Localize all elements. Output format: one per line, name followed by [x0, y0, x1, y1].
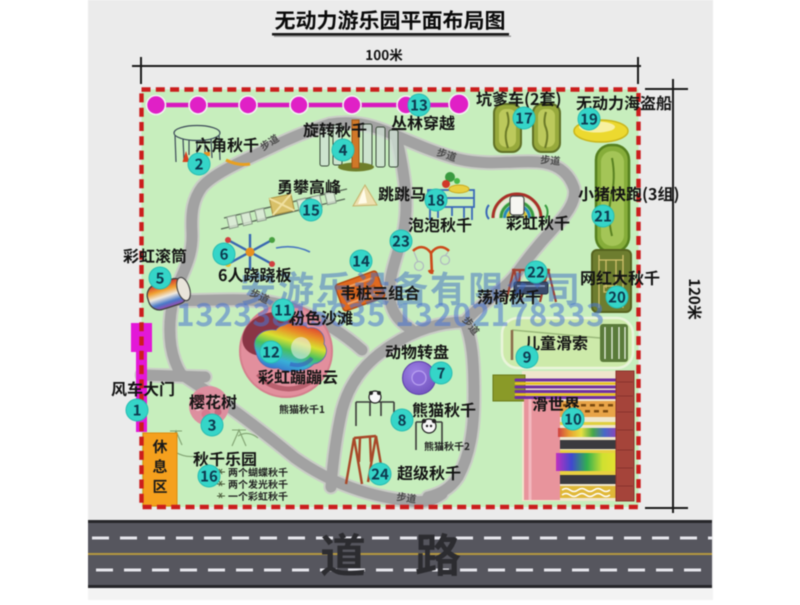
svg-text:11: 11: [274, 300, 292, 321]
svg-text:1: 1: [133, 400, 142, 421]
svg-text:21: 21: [594, 206, 612, 227]
svg-text:12: 12: [262, 342, 280, 363]
svg-text:7: 7: [437, 363, 446, 384]
svg-text:16: 16: [200, 466, 218, 487]
svg-text:无动力游乐园平面布局图: 无动力游乐园平面布局图: [275, 5, 506, 35]
svg-text:9: 9: [523, 347, 532, 368]
svg-text:坑爹车(2套): 坑爹车(2套): [476, 86, 562, 110]
svg-text:六角秋千: 六角秋千: [195, 132, 259, 156]
svg-text:120米: 120米: [684, 278, 705, 320]
svg-text:4: 4: [339, 140, 348, 161]
svg-text:旋转秋千: 旋转秋千: [303, 117, 367, 141]
svg-text:24: 24: [371, 464, 389, 485]
svg-text:100米: 100米: [365, 44, 403, 64]
svg-text:网红大秋千: 网红大秋千: [580, 265, 660, 289]
svg-text:20: 20: [608, 287, 626, 308]
svg-text:6: 6: [220, 244, 229, 265]
svg-text:23: 23: [392, 231, 410, 252]
svg-text:彩虹滚筒: 彩虹滚筒: [123, 243, 187, 267]
svg-text:泡泡秋千: 泡泡秋千: [408, 212, 472, 236]
svg-text:17: 17: [515, 108, 533, 129]
svg-text:5: 5: [156, 268, 165, 289]
svg-text:22: 22: [527, 262, 545, 283]
svg-text:粉色沙滩: 粉色沙滩: [289, 305, 353, 329]
svg-text:13: 13: [410, 95, 428, 116]
svg-text:息: 息: [152, 456, 167, 477]
svg-text:步道: 步道: [540, 151, 561, 168]
svg-text:14: 14: [352, 251, 370, 272]
svg-text:小猪快跑(3组): 小猪快跑(3组): [578, 181, 680, 205]
svg-text:风车大门: 风车大门: [111, 376, 175, 400]
svg-text:樱花树: 樱花树: [189, 389, 237, 413]
svg-text:韦桩三组合: 韦桩三组合: [340, 280, 420, 304]
svg-text:荡椅秋千: 荡椅秋千: [477, 284, 541, 308]
svg-text:10: 10: [564, 409, 582, 430]
svg-text:熊猫秋千: 熊猫秋千: [412, 397, 476, 421]
svg-text:18: 18: [427, 190, 445, 211]
svg-text:步道: 步道: [396, 488, 418, 506]
svg-text:彩虹秋千: 彩虹秋千: [506, 210, 570, 234]
svg-text:2: 2: [195, 154, 204, 175]
svg-text:8: 8: [398, 410, 407, 431]
svg-text:彩虹蹦蹦云: 彩虹蹦蹦云: [258, 364, 338, 388]
svg-text:3: 3: [208, 415, 217, 436]
svg-text:道: 道: [320, 520, 366, 586]
svg-text:跳跳马: 跳跳马: [378, 181, 426, 205]
svg-text:超级秋千: 超级秋千: [397, 460, 461, 484]
svg-text:19: 19: [580, 109, 598, 130]
svg-text:勇攀高峰: 勇攀高峰: [277, 174, 341, 198]
svg-text:6人跷跷板: 6人跷跷板: [218, 262, 291, 286]
svg-text:15: 15: [302, 200, 320, 221]
svg-text:熊猫秋千1: 熊猫秋千1: [279, 401, 325, 416]
svg-text:休: 休: [152, 436, 167, 457]
svg-text:熊猫秋千2: 熊猫秋千2: [424, 438, 470, 453]
svg-text:区: 区: [152, 476, 167, 497]
svg-text:路: 路: [415, 520, 461, 586]
svg-text:一个彩虹秋千: 一个彩虹秋千: [228, 488, 288, 503]
svg-text:动物转盘: 动物转盘: [385, 339, 449, 363]
